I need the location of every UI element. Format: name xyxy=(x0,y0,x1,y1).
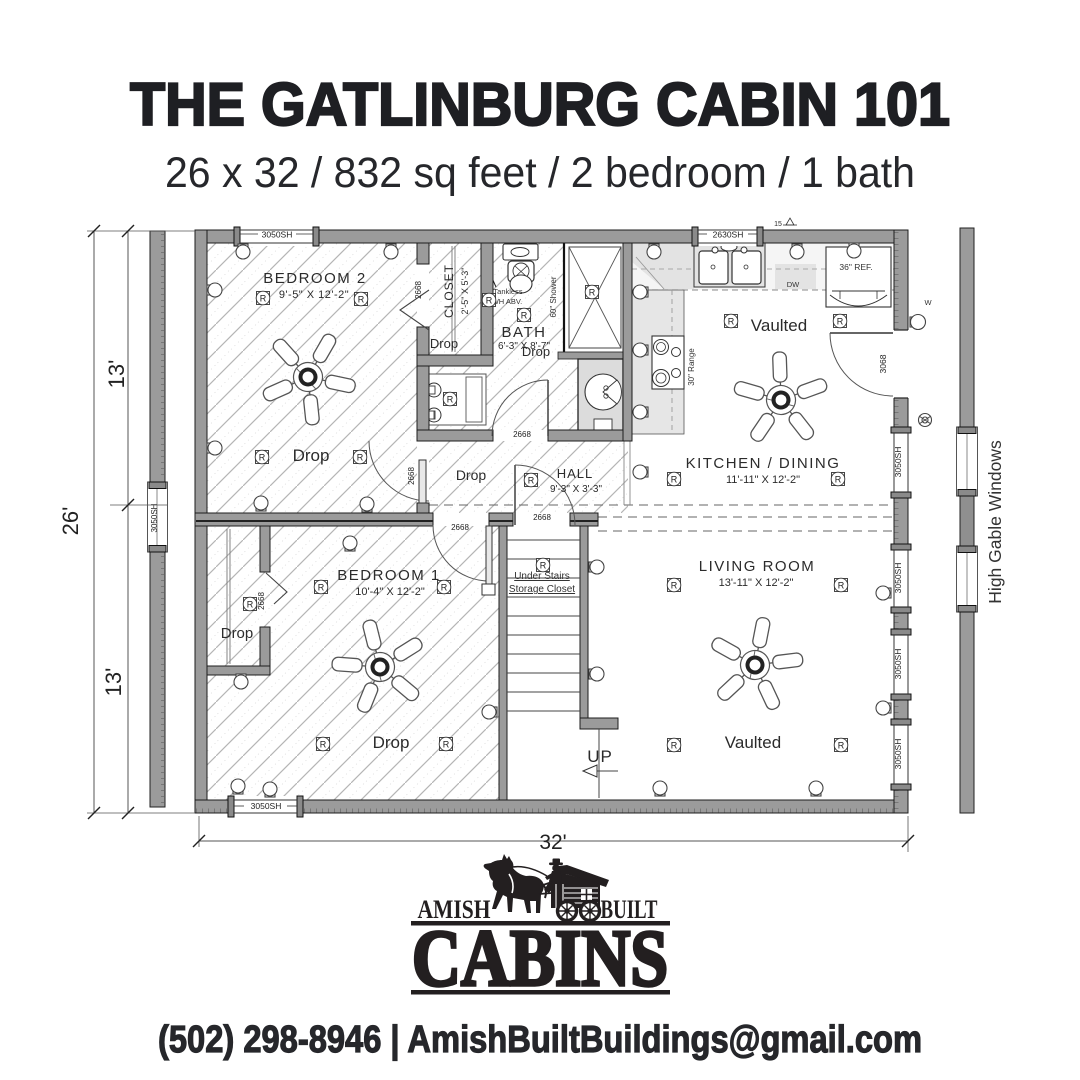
svg-text:CLOSET: CLOSET xyxy=(442,264,456,318)
svg-text:R: R xyxy=(318,582,325,592)
svg-text:W: W xyxy=(924,298,932,307)
svg-text:3050SH: 3050SH xyxy=(893,739,903,770)
svg-text:R: R xyxy=(260,293,267,303)
svg-text:R: R xyxy=(589,287,596,297)
svg-text:2668: 2668 xyxy=(414,281,423,299)
svg-text:BEDROOM 2: BEDROOM 2 xyxy=(263,270,367,287)
svg-text:LIVING ROOM: LIVING ROOM xyxy=(699,558,816,575)
svg-text:R: R xyxy=(443,739,450,749)
svg-text:15: 15 xyxy=(774,221,782,228)
svg-text:R: R xyxy=(671,580,678,590)
svg-text:Drop: Drop xyxy=(456,467,487,483)
svg-text:R: R xyxy=(486,295,493,305)
svg-text:10'-4" X 12'-2": 10'-4" X 12'-2" xyxy=(355,586,425,598)
svg-text:THE GATLINBURG CABIN 101: THE GATLINBURG CABIN 101 xyxy=(130,71,950,138)
svg-text:R: R xyxy=(838,740,845,750)
svg-text:R: R xyxy=(835,474,842,484)
svg-text:26 x 32 / 832 sq feet / 2 bedr: 26 x 32 / 832 sq feet / 2 bedroom / 1 ba… xyxy=(165,149,915,197)
svg-text:13': 13' xyxy=(104,360,129,389)
svg-text:3050SH: 3050SH xyxy=(251,801,282,811)
svg-text:3068: 3068 xyxy=(878,354,888,373)
svg-text:2668: 2668 xyxy=(451,523,469,532)
svg-text:Tankless: Tankless xyxy=(493,287,522,296)
svg-text:3050SH: 3050SH xyxy=(893,563,903,594)
svg-text:R: R xyxy=(259,452,266,462)
svg-text:BEDROOM 1: BEDROOM 1 xyxy=(337,567,441,584)
svg-text:R: R xyxy=(728,316,735,326)
svg-text:36" REF.: 36" REF. xyxy=(839,262,872,272)
svg-text:2'-5" X 5'-3": 2'-5" X 5'-3" xyxy=(460,268,470,315)
svg-text:UP: UP xyxy=(587,747,613,766)
svg-text:3050SH: 3050SH xyxy=(893,649,903,680)
svg-text:3050SH: 3050SH xyxy=(893,447,903,478)
svg-text:Storage Closet: Storage Closet xyxy=(509,584,575,595)
svg-text:R: R xyxy=(320,739,327,749)
svg-text:Drop: Drop xyxy=(221,625,254,642)
svg-text:60" Shower: 60" Shower xyxy=(549,276,558,317)
svg-text:R: R xyxy=(671,474,678,484)
svg-text:WH ABV.: WH ABV. xyxy=(492,297,523,306)
svg-text:Vaulted: Vaulted xyxy=(725,733,781,752)
svg-text:9'-5" X 12'-2": 9'-5" X 12'-2" xyxy=(279,289,349,301)
svg-text:13': 13' xyxy=(101,668,126,697)
svg-text:High Gable Windows: High Gable Windows xyxy=(985,440,1005,604)
svg-text:CABINS: CABINS xyxy=(412,915,668,1003)
svg-text:DW: DW xyxy=(787,280,800,289)
svg-text:2668: 2668 xyxy=(533,513,551,522)
svg-text:R: R xyxy=(671,740,678,750)
svg-text:32': 32' xyxy=(539,831,566,854)
svg-text:R: R xyxy=(358,294,365,304)
svg-text:Under Stairs: Under Stairs xyxy=(514,571,570,582)
svg-text:R: R xyxy=(447,394,454,404)
svg-text:2668: 2668 xyxy=(257,592,266,610)
svg-text:(502) 298-8946 | AmishBuiltBui: (502) 298-8946 | AmishBuiltBuildings@gma… xyxy=(158,1019,922,1061)
svg-text:Drop: Drop xyxy=(373,733,410,752)
svg-text:3050SH: 3050SH xyxy=(150,503,159,532)
svg-text:BATH: BATH xyxy=(502,324,547,341)
svg-text:2630SH: 2630SH xyxy=(713,230,744,240)
svg-text:13'-11" X 12'-2": 13'-11" X 12'-2" xyxy=(719,577,794,589)
svg-text:R: R xyxy=(521,310,528,320)
svg-text:R: R xyxy=(838,580,845,590)
svg-text:R: R xyxy=(441,582,448,592)
svg-text:R: R xyxy=(837,316,844,326)
svg-text:30" Range: 30" Range xyxy=(687,348,696,386)
svg-text:R: R xyxy=(247,599,254,609)
svg-text:R: R xyxy=(528,475,535,485)
svg-text:Drop: Drop xyxy=(430,336,458,351)
svg-text:3050SH: 3050SH xyxy=(262,230,293,240)
svg-text:R: R xyxy=(540,560,547,570)
svg-text:26': 26' xyxy=(58,507,83,536)
svg-text:11'-11" X 12'-2": 11'-11" X 12'-2" xyxy=(726,474,800,486)
svg-text:2668: 2668 xyxy=(407,467,416,485)
svg-text:Drop: Drop xyxy=(293,446,330,465)
svg-text:9'-3" X 3'-3": 9'-3" X 3'-3" xyxy=(550,484,603,495)
svg-text:HALL: HALL xyxy=(557,466,594,481)
svg-text:R: R xyxy=(357,452,364,462)
svg-text:Drop: Drop xyxy=(522,344,550,359)
svg-text:KITCHEN / DINING: KITCHEN / DINING xyxy=(686,455,841,472)
svg-text:Vaulted: Vaulted xyxy=(751,316,807,335)
svg-text:2668: 2668 xyxy=(513,430,531,439)
